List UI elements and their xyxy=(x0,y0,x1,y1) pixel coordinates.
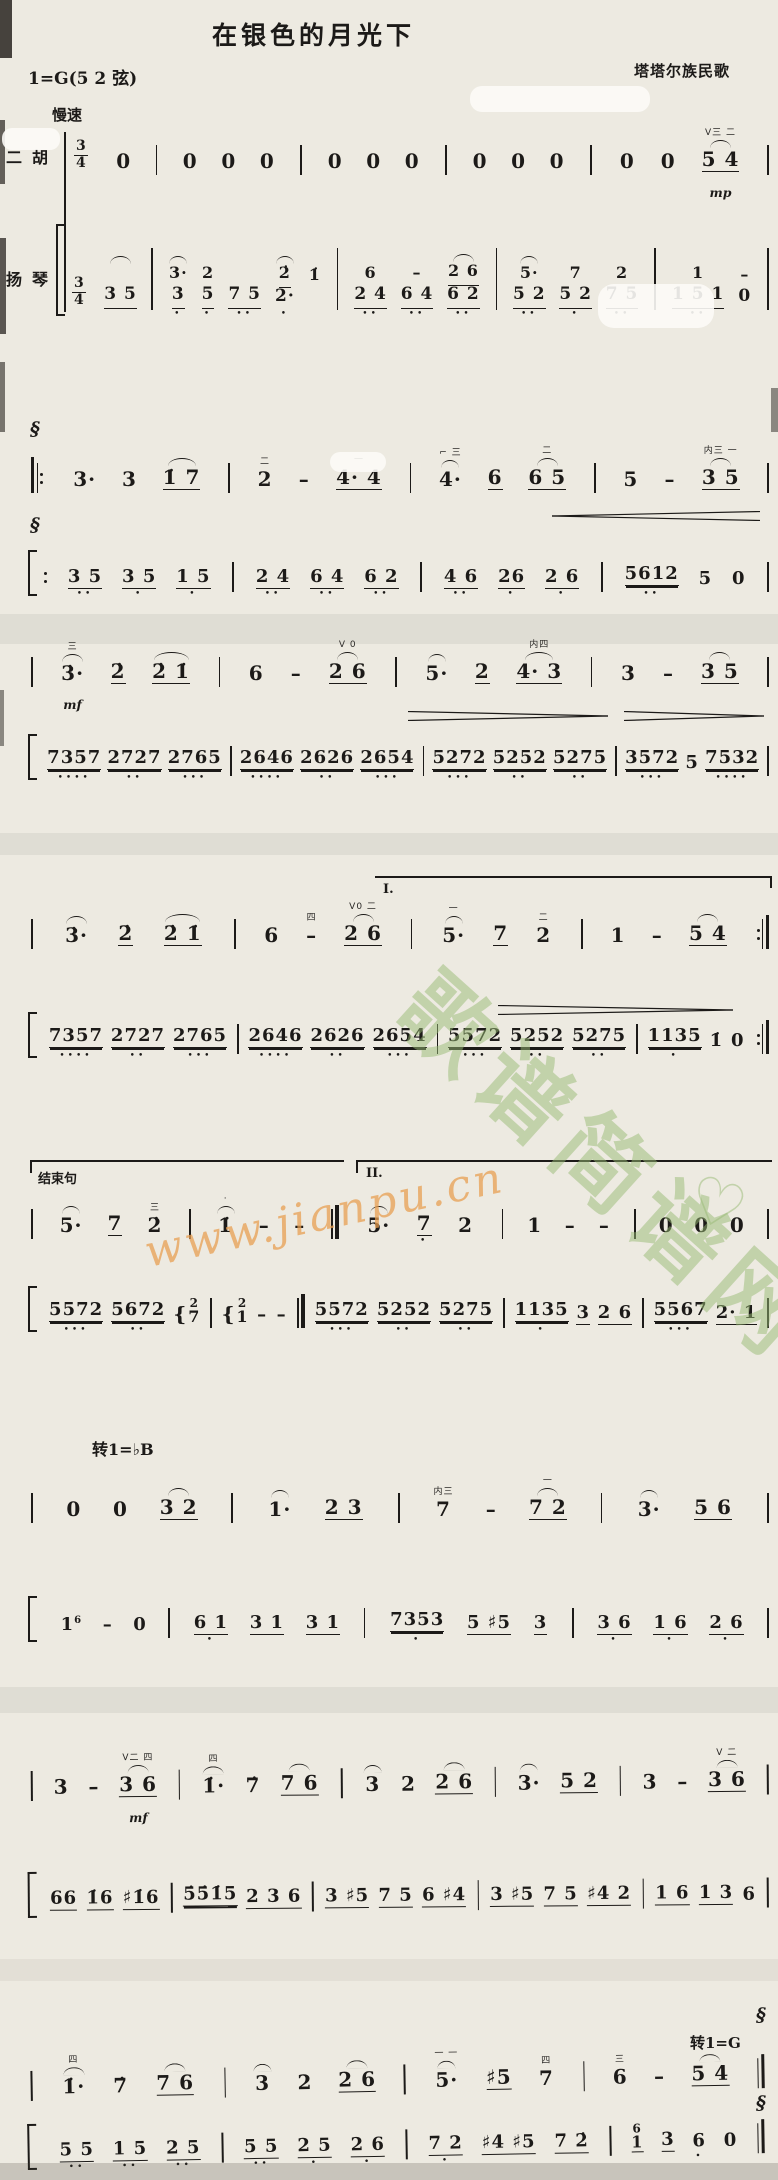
barline xyxy=(610,2126,612,2156)
note: ♯1̇6 xyxy=(123,1889,160,1910)
note-group: – xyxy=(88,1776,100,1806)
note: 4 6 xyxy=(444,568,478,589)
note: 2 xyxy=(401,1774,416,1795)
note: 0 xyxy=(113,1499,128,1520)
note-group: – xyxy=(276,1306,288,1334)
octave-dots: •• xyxy=(409,311,426,318)
note-group: 3 6• xyxy=(597,1614,631,1644)
barline xyxy=(601,562,603,592)
note: 1̇· xyxy=(202,1775,225,1796)
note-group: – xyxy=(298,469,310,499)
barline xyxy=(156,145,158,175)
barline-thin xyxy=(31,1209,33,1239)
barline-thin xyxy=(496,248,498,310)
note-group: 3 xyxy=(54,1777,69,1807)
barline-thin xyxy=(234,919,236,949)
ending-phrase-label: 结束句 xyxy=(38,1168,77,1187)
barline-thin xyxy=(581,919,583,949)
note-group: ♯5 xyxy=(486,2067,512,2099)
note: 2 6 xyxy=(338,2069,376,2093)
barline-thin xyxy=(767,1608,769,1638)
barline-thin xyxy=(210,1298,212,1328)
note: 7 2̇ xyxy=(554,2132,589,2153)
barline-thin xyxy=(767,746,769,776)
note-group: 一 一5· xyxy=(434,2046,459,2099)
barline xyxy=(300,145,302,175)
note-group: 5 4 xyxy=(689,914,727,955)
note-lower-voice: 7 5 xyxy=(228,286,261,309)
note: 5 5 xyxy=(244,2138,279,2159)
barline-thin xyxy=(31,1771,33,1801)
note-group: 2 xyxy=(401,1774,416,1804)
barline-thin xyxy=(337,248,339,310)
note: 61 xyxy=(631,2122,644,2152)
octave-dots: •• xyxy=(265,591,282,598)
barline-thin xyxy=(219,657,221,687)
system-line xyxy=(64,132,66,312)
barline-thin xyxy=(410,463,412,493)
note-group: 7357•••• xyxy=(49,1027,103,1060)
note: 3 2 xyxy=(160,1497,198,1520)
note-lower-voice: 3 5 xyxy=(104,286,137,309)
note: 4· xyxy=(439,469,462,490)
note: 0 xyxy=(405,151,420,172)
note-group: 5 2 xyxy=(560,1770,598,1802)
note-group: 6 1• xyxy=(194,1614,228,1644)
octave-dots: •••• xyxy=(259,1053,292,1060)
chord-bottom-note: 1 xyxy=(631,2134,643,2150)
note-group: 二6 5 xyxy=(528,444,566,499)
barline-thin xyxy=(767,562,769,592)
barline-thin xyxy=(503,1298,505,1328)
modulation-to-G: 转1=G xyxy=(690,2032,741,2053)
erhu-line-3: 三3̇·mf2̇2̇ 1̇6–V 02 65·2内四4· 33–3 5 xyxy=(28,638,772,693)
barline-thick xyxy=(31,457,34,493)
note-group: V 二3 6 xyxy=(708,1746,746,1801)
start-barline xyxy=(31,919,33,949)
note: 3 6 xyxy=(597,1614,631,1635)
fingering-mark: ⌐ 三 xyxy=(439,446,461,460)
measure: 3–V二 四3 6mf xyxy=(35,1751,175,1807)
note: – xyxy=(652,925,663,946)
measure: 3572•••57532•••• xyxy=(620,749,764,782)
note-group: 6 xyxy=(742,1886,756,1914)
note: 3 xyxy=(534,1614,548,1635)
barline xyxy=(767,1878,769,1908)
note: 3 1 xyxy=(250,1614,284,1635)
note: 2 5 xyxy=(297,2137,332,2158)
repeat-start xyxy=(31,457,45,493)
octave-dots: •• xyxy=(130,1053,147,1060)
note-group: 6• xyxy=(692,2132,706,2160)
note: 5 xyxy=(685,754,699,773)
note: 2765 xyxy=(168,749,222,770)
octave-dots: •• xyxy=(453,591,470,598)
note-group: 内三7 xyxy=(433,1485,453,1529)
barline-thin xyxy=(341,1768,343,1798)
measure: ⌐ 三4·6二6 5 xyxy=(414,444,591,499)
note: – xyxy=(665,469,676,490)
measure: 6四–V0 二2 6 xyxy=(239,900,408,955)
barline-thin xyxy=(762,919,764,949)
note: 7532 xyxy=(705,749,759,770)
barline-thin xyxy=(757,2058,759,2088)
scan-artifact xyxy=(598,284,714,328)
note-group: 0 xyxy=(724,2132,738,2160)
measure: 661̇6♯1̇6 xyxy=(42,1889,168,1920)
scan-artifact xyxy=(0,614,778,644)
note-group: 7 xyxy=(108,1213,123,1245)
barline xyxy=(477,1880,479,1910)
note-group: 1 6• xyxy=(653,1614,687,1644)
note: 7 xyxy=(436,1499,451,1520)
octave-dots: •••• xyxy=(250,775,283,782)
octave-dots: • xyxy=(204,311,212,318)
measure: 2 4••6 4••6 2•• xyxy=(237,568,417,598)
note: 2765 xyxy=(173,1027,227,1048)
note-group: 1̇ xyxy=(710,1032,724,1060)
song-title: 在银色的月光下 xyxy=(212,16,415,52)
barline-thin xyxy=(445,145,447,175)
note-group: – xyxy=(651,925,663,955)
measure: 3 ♯57 5♯4 2 xyxy=(482,1885,640,1916)
barline-thin xyxy=(767,463,769,493)
start-barline xyxy=(31,1209,33,1239)
repeat-dots xyxy=(44,562,47,592)
octave-dots: •• xyxy=(455,311,472,318)
octave-dots: • xyxy=(174,311,182,318)
note-upper-voice: 1̇ xyxy=(309,267,321,288)
note-group: 0 xyxy=(620,151,635,181)
note: 2 6 xyxy=(545,568,579,589)
octave-dots: •• xyxy=(329,1053,346,1060)
note-group: 7 5•• xyxy=(228,265,261,318)
barline xyxy=(642,1298,644,1328)
note: 5672 xyxy=(111,1301,165,1322)
note-lower-voice: 5 2 xyxy=(513,286,546,309)
measure: 4 6••26•2 6• xyxy=(425,568,598,598)
barline xyxy=(224,2068,226,2098)
note-group: 0 xyxy=(260,151,275,181)
note-group: –6 4•• xyxy=(401,265,434,318)
note: 3 5 xyxy=(701,661,739,684)
hairpin-line xyxy=(552,516,760,521)
note: 1 6 xyxy=(653,1614,687,1635)
note-group: 3 xyxy=(642,1772,657,1802)
chord-bottom-note: 7 xyxy=(188,1309,200,1325)
measure: 四1̇·7̇7 6 xyxy=(35,2051,222,2107)
barline-thin xyxy=(423,746,425,776)
note: 5275 xyxy=(439,1301,493,1322)
note-group: 2̇ 1̇ xyxy=(152,652,190,693)
octave-dots: • xyxy=(572,311,580,318)
note: 0 xyxy=(183,151,198,172)
note: 0 xyxy=(732,570,746,589)
note-group: 二2 xyxy=(536,911,551,955)
barline xyxy=(230,746,232,776)
barline-thick xyxy=(766,915,769,949)
note: 7353 xyxy=(390,1611,444,1632)
note: 5572 xyxy=(315,1301,369,1322)
note: 3̇· xyxy=(61,663,84,684)
fingering-mark: 四 xyxy=(208,1752,218,1766)
octave-dots: •• xyxy=(77,591,94,598)
note-group: 3 5•• xyxy=(68,568,102,598)
instrument-label-yangqin: 扬琴 xyxy=(6,266,58,290)
note-group: 2 xyxy=(475,661,490,693)
scan-artifact xyxy=(0,690,4,746)
note: 5· xyxy=(435,2069,458,2090)
barline-thin xyxy=(312,1882,314,1912)
note-group: V二 四3 6mf xyxy=(119,1751,157,1806)
note-group: 内三 一3 5 xyxy=(702,444,740,499)
barline xyxy=(237,1024,239,1054)
note-group: 3 ♯5 xyxy=(490,1886,534,1916)
note: 0 xyxy=(724,2132,738,2151)
note: 2626 xyxy=(300,749,354,770)
measure: 5·2内四4· 3 xyxy=(400,638,588,693)
note-group: 3 5 xyxy=(701,652,739,693)
barline-thin xyxy=(767,1493,769,1523)
dot xyxy=(40,473,43,476)
note-upper-voice: – xyxy=(740,267,749,288)
note: 5 6 xyxy=(694,1497,732,1520)
note-group: 四7 xyxy=(539,2054,555,2098)
scan-artifact xyxy=(2,128,60,150)
note: 2 xyxy=(536,925,551,946)
octave-dots: • xyxy=(695,2153,703,2160)
note: 1135 xyxy=(648,1027,702,1048)
note-group: 66 xyxy=(50,1890,77,1920)
barline-thin xyxy=(591,657,593,687)
note-group: 3 5• xyxy=(122,568,156,598)
note: 5272 xyxy=(432,749,486,770)
yangqin-line-3: 7357••••2727••2765•••2646••••2626••2654•… xyxy=(28,734,772,782)
note-group: 7 6 xyxy=(156,2063,195,2105)
note-group: 5612•• xyxy=(625,565,679,598)
barline xyxy=(406,2129,408,2159)
fingering-mark: V 二 xyxy=(716,1746,737,1760)
note-group: 3 2 xyxy=(160,1488,198,1529)
note: 2 6 xyxy=(344,923,382,946)
dynamic-mark: mp xyxy=(710,185,732,200)
octave-dots: • xyxy=(189,591,197,598)
barline-thin xyxy=(230,746,232,776)
note-group: –0 xyxy=(738,267,751,318)
system-line xyxy=(356,1160,358,1173)
erhu-line-2: 3·31̇ 7二2–一4· 4⌐ 三4·6二6 55–内三 一3 5 xyxy=(28,444,772,499)
measure: 6 1•3 13 1 xyxy=(173,1614,361,1644)
measure: 7353•5 ♯53 xyxy=(368,1611,569,1644)
barline-thin xyxy=(300,145,302,175)
note: 3̇· xyxy=(65,925,88,946)
note-group: 1 xyxy=(611,925,626,955)
measure: 7357••••2727••2765••• xyxy=(42,1027,234,1060)
note-upper-voice: 2 xyxy=(202,265,214,286)
note-group: 2626•• xyxy=(310,1027,364,1060)
octave-dots: •• xyxy=(396,1327,413,1334)
measure: 322 6 xyxy=(228,2059,401,2103)
barline xyxy=(620,1766,622,1796)
note-group: 7̇ xyxy=(113,2075,128,2105)
octave-dots: • xyxy=(722,1637,730,1644)
barline-thick xyxy=(761,2119,765,2153)
key-signature: 1=G(5 2 弦) xyxy=(28,64,137,89)
note: 0 xyxy=(221,151,236,172)
measure: 5̇5̇1̇52 3 6 xyxy=(175,1885,309,1919)
measure: 3·31̇ 7 xyxy=(48,458,225,499)
note-group: 5572••• xyxy=(49,1301,103,1334)
segno-sign: § xyxy=(756,2092,766,2114)
note: 1 6 xyxy=(655,1884,690,1905)
barline xyxy=(642,1879,644,1909)
barline xyxy=(496,248,498,310)
barline xyxy=(171,1883,173,1913)
note: {27 xyxy=(173,1297,200,1325)
note-group: 2̇ xyxy=(118,923,133,955)
note: 0 xyxy=(260,151,275,172)
dynamic-mark: mf xyxy=(129,1810,148,1825)
measure: 000 xyxy=(305,151,442,181)
tempo-marking: 慢速 xyxy=(52,104,82,125)
octave-dots: •• xyxy=(319,775,336,782)
note: 6 5 xyxy=(528,467,566,490)
barline xyxy=(581,919,583,949)
chord-brace: { xyxy=(173,1304,187,1325)
yangqin-brace xyxy=(28,1012,37,1058)
note-group: 2654••• xyxy=(360,749,414,782)
measure: 2646••••2626••2654••• xyxy=(235,749,420,782)
note: 2646 xyxy=(248,1027,302,1048)
barline-thin xyxy=(601,562,603,592)
note-group: 7 6 xyxy=(281,1763,319,1804)
note-group: 7532•••• xyxy=(705,749,759,782)
barline-thin xyxy=(406,2129,408,2159)
yangqin-brace xyxy=(28,1286,37,1332)
barline-thin xyxy=(642,1879,644,1909)
note-group: 四– xyxy=(306,911,318,955)
barline xyxy=(767,1493,769,1523)
barline xyxy=(404,2064,406,2094)
note-group: 2 66 2•• xyxy=(447,254,480,318)
scan-artifact xyxy=(0,1959,778,1981)
note-group: 1 6 xyxy=(655,1884,690,1914)
note: 6 xyxy=(488,467,503,490)
octave-dots: •• xyxy=(643,591,660,598)
note: 2 6 xyxy=(435,1771,473,1794)
measure: 6136•0 xyxy=(614,2120,754,2161)
fingering-mark: 一 xyxy=(449,902,459,916)
note: 5 2 xyxy=(560,1770,598,1793)
octave-dots: • xyxy=(558,591,566,598)
note: 5 4 xyxy=(702,149,740,172)
hairpin-line xyxy=(624,716,764,721)
note-group: 2626•• xyxy=(300,749,354,782)
note-upper-voice: 1 xyxy=(692,265,704,286)
note-upper-voice: – xyxy=(413,265,422,286)
note-group: 6 4•• xyxy=(310,568,344,598)
measure: 1·2 3 xyxy=(236,1490,395,1529)
note: 2654 xyxy=(360,749,414,770)
note-lower-voice: 0 xyxy=(738,288,751,309)
note-group: 0 xyxy=(113,1499,128,1529)
barline xyxy=(420,562,422,592)
note-group: 一7 2 xyxy=(529,1474,567,1529)
note-group: 5̇5̇1̇5 xyxy=(183,1885,237,1918)
note: 7 6 xyxy=(156,2072,194,2096)
note-group: 75 2• xyxy=(559,265,592,318)
note: 0 xyxy=(661,151,676,172)
measure: 000 xyxy=(160,151,297,181)
barline xyxy=(767,1765,769,1795)
note-group: 5 ♯5 xyxy=(467,1614,511,1644)
note: 5· xyxy=(425,663,448,684)
hairpin-line xyxy=(624,712,764,717)
barline-thin xyxy=(404,2064,406,2094)
note: 1135 xyxy=(515,1301,569,1322)
yangqin-line-6: 16–06 1•3 13 17353•5 ♯533 6•1 6•2 6• xyxy=(28,1596,772,1644)
note-group: 2 6 xyxy=(598,1304,632,1334)
note-group: 5275•• xyxy=(439,1301,493,1334)
note-group: ♯1̇6 xyxy=(123,1889,160,1919)
note-group: 7 2• xyxy=(428,2135,463,2165)
measure: 3 5••3 5•1 5• xyxy=(49,568,229,598)
note-group: 2646•••• xyxy=(240,749,294,782)
note-group: 2̇2·• xyxy=(275,256,295,318)
note-group: ♯4 2 xyxy=(587,1885,631,1915)
note-group: 3·3• xyxy=(169,256,188,318)
note-group: – xyxy=(664,469,676,499)
note-group: 2 xyxy=(458,1215,473,1245)
barline xyxy=(601,1493,603,1523)
hairpin-line xyxy=(408,712,608,717)
note-group: 3 1 xyxy=(250,1614,284,1644)
note: 3 5 xyxy=(702,467,740,490)
scan-artifact xyxy=(0,2163,778,2180)
barline-thin xyxy=(762,1024,764,1054)
note-group: 2̇ 1̇ xyxy=(164,914,202,955)
note-lower-voice: 3 xyxy=(172,286,185,309)
measure: 3̇·2̇2̇ 1̇ xyxy=(36,914,232,955)
note: 1 5 xyxy=(176,568,210,589)
note-group: 5272••• xyxy=(432,749,486,782)
dot xyxy=(757,929,760,932)
note-group: 3 xyxy=(661,2131,675,2161)
note-group: 0 xyxy=(366,151,381,181)
note: 2 5 xyxy=(166,2139,201,2160)
yangqin-brace xyxy=(28,1596,37,1642)
yangqin-brace xyxy=(28,550,37,596)
note-upper-voice: 7 xyxy=(570,265,582,286)
note: – xyxy=(663,663,674,684)
note-group: 3 xyxy=(621,663,636,693)
note-group: 3572••• xyxy=(625,749,679,782)
note-group: 2 4•• xyxy=(256,568,290,598)
measure: 内三7–一7 2 xyxy=(403,1474,598,1529)
measure: 3 6•1 6•2 6• xyxy=(577,1614,765,1644)
note: 3 xyxy=(621,663,636,684)
hairpin-lines xyxy=(408,711,608,721)
measure: 三3̇·mf2̇2̇ 1̇ xyxy=(36,640,216,693)
note: 6 ♯4 xyxy=(422,1886,466,1907)
octave-dots: • xyxy=(537,1327,545,1334)
note-group: 2 6 xyxy=(435,1762,473,1803)
barline-thin xyxy=(757,2123,759,2153)
measure: 四1̇·7̇7 6 xyxy=(183,1751,338,1805)
measure: 0 xyxy=(95,151,153,181)
note: 2727 xyxy=(111,1027,165,1048)
note-group: 3· xyxy=(73,469,96,499)
